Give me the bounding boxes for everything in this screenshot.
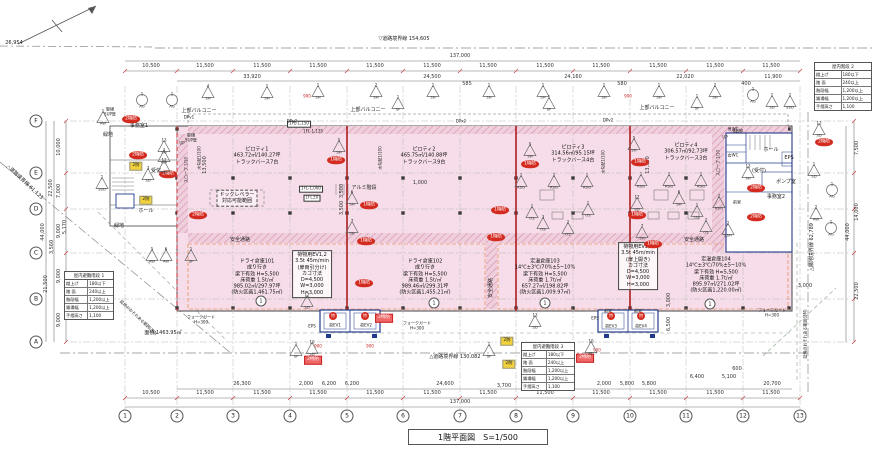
fitting-symbol: 2 AW — [809, 207, 823, 220]
symbol-code: SH — [741, 177, 755, 181]
plan-label: フォークガード H=300 — [403, 321, 431, 330]
symbol-number: 12 — [630, 196, 644, 200]
fitting-symbol: 5 SH — [523, 144, 537, 157]
room-label: 定温倉庫103 14℃±3℃/70%±5~10% 梁下有効 H=5,500 床荷… — [515, 258, 575, 296]
symbol-number: 13 — [812, 122, 826, 126]
dimension-label: 580 — [617, 82, 627, 88]
fitting-symbol: 5 AW — [145, 249, 159, 262]
symbol-code: SSD — [95, 188, 109, 192]
symbol-number: 1 — [825, 183, 839, 187]
fitting-symbol: 2 SSD — [783, 95, 797, 108]
plan-label: 面積:1463.95㎡ — [144, 331, 181, 337]
symbol-code: AG — [165, 105, 179, 109]
symbol-code: SF — [184, 260, 198, 264]
dimension-label: 11,500 — [536, 64, 554, 70]
symbol-number: 1 — [694, 173, 708, 177]
fitting-symbol: 2 SH — [369, 85, 383, 98]
dimension-label: 11,500 — [479, 391, 497, 397]
fitting-symbol: 1 SF — [289, 344, 303, 357]
grid-column-bubble: 7 — [454, 410, 467, 423]
fitting-symbol: 1 SH — [597, 85, 611, 98]
stair-table-title: 屋内避難階段 3 — [522, 343, 574, 351]
symbol-number: 1 — [482, 84, 496, 88]
grid-row-bubble: F — [30, 115, 43, 128]
grid-column-bubble: 4 — [284, 410, 297, 423]
dimension-label: 3,700 — [497, 384, 511, 390]
fitting-symbol: 1 AG — [135, 94, 149, 107]
symbol-code: SSD — [783, 106, 797, 110]
grid-row-bubble: C — [30, 247, 43, 260]
symbol-number: 2 — [809, 206, 823, 210]
room-label: ピロティ4 306.57㎡/92.73坪 トラックバース3台 — [664, 143, 708, 162]
plan-label: 13,500 — [203, 156, 209, 174]
symbol-code: SH — [652, 96, 666, 100]
fire-protection-badge: 1特防 — [357, 237, 375, 245]
symbol-code: SH — [260, 97, 274, 101]
fitting-symbol: 6 AW — [159, 249, 173, 262]
fitting-symbol: 1 AW — [96, 111, 110, 124]
dimension-label: 11,500 — [479, 64, 497, 70]
plan-label: 水勾配1/100 — [379, 146, 384, 170]
plan-label: 6,500 — [667, 317, 673, 331]
symbol-number: 1 — [746, 88, 760, 92]
fitting-symbol: 1 OS — [581, 203, 595, 216]
grid-row-bubble: E — [30, 167, 43, 180]
symbol-number: 1 — [289, 343, 303, 347]
symbol-code: SH — [311, 96, 325, 100]
symbol-code: SD — [812, 134, 826, 138]
fire-protection-badge: 2特防 — [747, 184, 765, 192]
symbol-code: SD — [141, 179, 155, 183]
symbol-code: OS — [581, 214, 595, 218]
fitting-symbol: 6 SH — [345, 192, 359, 205]
fitting-symbol: 1 SF — [391, 97, 405, 110]
symbol-number: 1 — [135, 93, 149, 97]
symbol-number: 1 — [765, 94, 779, 98]
dimension-label: 21,500 — [44, 275, 50, 293]
symbol-number: 13 — [741, 165, 755, 169]
fitting-symbol: 1 RSG — [580, 175, 594, 188]
grid-column-bubble: 8 — [510, 410, 523, 423]
symbol-code: SF — [391, 108, 405, 112]
symbol-code: SH — [708, 96, 722, 100]
symbol-code: AW — [809, 218, 823, 222]
grid-column-bubble: 13 — [794, 410, 807, 423]
fitting-symbol: 4 SH — [201, 86, 215, 99]
symbol-number: 2 — [721, 222, 735, 226]
plan-label: 1FL-1,135 — [303, 130, 323, 135]
dimension-label: 11,500 — [706, 64, 724, 70]
symbol-number: 5 — [627, 137, 641, 141]
room-label: 荷物用EV3,4 3.5t 45m/min (扉上開き) カゴ寸法 D=4,50… — [618, 242, 658, 290]
dimension-label: 24,160 — [564, 75, 582, 81]
spec-value: 240以上 — [547, 359, 565, 366]
dimension-label: 11,500 — [196, 391, 214, 397]
dimension-label: 3,560 — [50, 240, 56, 254]
dimension-label: 11,500 — [309, 391, 327, 397]
symbol-number: 1 — [95, 176, 109, 180]
symbol-number: 13 — [528, 314, 542, 318]
symbol-code: AG — [746, 100, 760, 104]
symbol-code: RSG — [712, 207, 726, 211]
dimension-label: 5,800 — [642, 382, 656, 388]
symbol-number: 1 — [311, 84, 325, 88]
symbol-number: 2 — [561, 221, 575, 225]
fire-protection-badge: 1特防 — [631, 158, 649, 166]
plan-label: 1FL-1,000 — [299, 186, 323, 193]
symbol-code: RSG — [580, 186, 594, 190]
symbol-code: SD — [584, 352, 598, 356]
stair-spec-table-2: 屋内階段 2 蹴上げ180以下 踏 面240以上 階段幅1,200以上 踊場幅1… — [814, 62, 872, 111]
symbol-code: RSG — [547, 186, 561, 190]
symbol-code: SD — [305, 353, 319, 357]
room-number-mark: 1 — [256, 296, 267, 307]
fitting-symbol: 1 SH — [311, 85, 325, 98]
symbol-number: 10 — [305, 341, 319, 345]
symbol-code: SSH — [721, 234, 735, 238]
dimension-label: 6,200 — [345, 382, 359, 388]
plan-label: ポンプ室 — [776, 180, 796, 186]
plan-label: 安全通路 — [230, 238, 250, 244]
fitting-symbol: 2 SH — [708, 85, 722, 98]
fire-protection-badge: 2特防 — [129, 151, 147, 159]
fitting-symbol: 1 AG — [746, 89, 760, 102]
dimension-label: 11,500 — [423, 64, 441, 70]
dimension-label: 11,500 — [253, 391, 271, 397]
symbol-code: SH — [332, 151, 346, 155]
grid-column-bubble: 5 — [341, 410, 354, 423]
fitting-symbol: 5 SH — [332, 140, 346, 153]
symbol-number: 7 — [635, 225, 649, 229]
fitting-symbol: 2 RSG — [712, 196, 726, 209]
fitting-symbol: 2 OS — [699, 220, 713, 233]
symbol-code: AG — [825, 195, 839, 199]
symbol-number: 11 — [157, 159, 171, 163]
symbol-code: SF — [482, 355, 496, 359]
symbol-code: SH — [672, 203, 686, 207]
dimension-label: 11,500 — [592, 64, 610, 70]
plan-label: EPS — [308, 325, 315, 330]
plan-label: ホール — [763, 148, 778, 154]
spec-value: 1,200以上 — [842, 87, 864, 94]
grid-column-bubble: 9 — [567, 410, 580, 423]
grid-column-bubble: 2 — [171, 410, 184, 423]
plan-label: 上部バルコニー — [640, 106, 675, 112]
plan-label: ▽道路境界線 154,605 — [378, 37, 429, 43]
spec-value: 1,100 — [547, 383, 561, 390]
fitting-symbol: 1 SH — [426, 85, 440, 98]
dimension-label: 11,500 — [762, 64, 780, 70]
fitting-symbol: 10 SD — [305, 342, 319, 355]
symbol-number: 6 — [672, 191, 686, 195]
plan-label: EPS — [591, 317, 598, 322]
fitting-symbol: 7 SH — [345, 221, 359, 234]
room-label: ピロティ2 465.75㎡/140.88坪 トラックバース9台 — [401, 147, 448, 166]
plan-label: 荷EV2 — [360, 324, 372, 329]
dimension-label: 10,000 — [57, 138, 63, 156]
dimension-label: 44,000 — [846, 223, 852, 241]
spec-key: 踊場幅 — [65, 304, 88, 311]
spec-value: 180以下 — [842, 71, 860, 78]
symbol-number: 7 — [345, 220, 359, 224]
fitting-symbol: 1 SH — [260, 86, 274, 99]
stair-table-title: 屋内階段 2 — [815, 63, 871, 71]
spec-key: 蹴上げ — [815, 71, 842, 78]
fitting-symbol: 1 SSD — [95, 177, 109, 190]
symbol-number: 4 — [157, 149, 171, 153]
grid-column-bubble: 10 — [624, 410, 637, 423]
symbol-number: 1 — [184, 248, 198, 252]
plan-label: 上部バルコニー — [351, 108, 386, 114]
plan-label: 1FL±0 — [304, 195, 321, 202]
plan-label: UP — [722, 136, 727, 141]
spec-value: 240以上 — [842, 79, 860, 86]
fitting-symbol: 1 SD — [765, 95, 779, 108]
symbol-code: SD — [528, 326, 542, 330]
spec-key: 手摺高さ — [815, 103, 842, 110]
dimension-label: 7,500 — [855, 141, 861, 155]
dimension-label: 33,920 — [243, 75, 261, 81]
dimension-label: 600 — [732, 367, 742, 373]
spec-value: 1,200以上 — [547, 375, 569, 382]
plan-label: △道路境界線 130,082 — [429, 355, 480, 361]
fitting-symbol: 1 OS — [690, 205, 704, 218]
fire-protection-badge: 2防 — [502, 360, 515, 369]
symbol-number: 13 — [157, 139, 171, 143]
fitting-symbol: 12 SD — [300, 295, 314, 308]
symbol-number: 1 — [690, 204, 704, 208]
spec-key: 踊場幅 — [815, 95, 842, 102]
symbol-number: 1 — [824, 221, 838, 225]
plan-label: 延焼のおそれある範囲(3M) — [804, 309, 809, 358]
dimension-label: 7,000 — [57, 184, 63, 198]
spec-key: 手摺高さ — [65, 312, 88, 319]
symbol-code: SH — [426, 96, 440, 100]
fire-protection-badge: 2特防 — [122, 115, 140, 123]
spec-key: 踏 面 — [815, 79, 842, 86]
symbol-code: SH — [482, 96, 496, 100]
fitting-symbol: 1 SF — [482, 344, 496, 357]
symbol-number: 1 — [514, 174, 528, 178]
plan-label: 26,954 — [5, 41, 23, 47]
fitting-symbol: 1 RSG — [634, 174, 648, 187]
plan-label: 荷EV4 — [635, 325, 647, 330]
plan-label: 安全通路 — [684, 238, 704, 244]
room-label: ピロティ3 314.56㎡/95.15坪 トラックバース4台 — [551, 145, 595, 164]
symbol-code: SF — [542, 108, 556, 112]
spec-value: 180以下 — [88, 280, 106, 287]
symbol-number: 1 — [391, 96, 405, 100]
plan-label: EPS — [784, 156, 793, 162]
fire-protection-badge: 1特防 — [644, 240, 662, 248]
symbol-code: SD — [765, 106, 779, 110]
symbol-code: SD — [300, 306, 314, 310]
fire-protection-badge: 1特防 — [327, 156, 345, 164]
plan-label: スロープ 1/10 — [717, 150, 722, 176]
dimension-label: 10,500 — [142, 64, 160, 70]
fitting-symbol: 1 RSG — [662, 174, 676, 187]
symbol-number: 1 — [807, 163, 821, 167]
fitting-symbol: 7 SH — [635, 226, 649, 239]
fitting-symbol: 1 RSG — [514, 175, 528, 188]
dimension-label: 2,000 — [597, 382, 611, 388]
room-number-mark: 1 — [429, 298, 440, 309]
spec-key: 階段幅 — [522, 367, 547, 374]
grid-column-bubble: 12 — [737, 410, 750, 423]
fire-protection-badge: 2特防 — [747, 213, 765, 221]
dimension-label: 137,000 — [450, 400, 471, 406]
spec-value: 180以下 — [547, 351, 565, 358]
spec-value: 1,200以上 — [547, 367, 569, 374]
fire-protection-badge: 特 — [637, 312, 645, 320]
plan-label: 1,000 — [413, 181, 427, 187]
dimension-label: 11,500 — [253, 64, 271, 70]
symbol-code: SH — [201, 97, 215, 101]
symbol-code: OS — [536, 228, 550, 232]
fitting-symbol: 1 SF — [690, 96, 704, 109]
plan-label: 3,000 — [798, 284, 812, 290]
plan-label: ホール — [138, 209, 153, 215]
fire-protection-badge: 2防 — [500, 337, 513, 346]
symbol-number: 2 — [547, 174, 561, 178]
dimension-label: 11,500 — [706, 391, 724, 397]
fitting-symbol: 5 SH — [627, 138, 641, 151]
symbol-code: SH — [635, 237, 649, 241]
symbol-code: RSG — [634, 185, 648, 189]
dimension-label: 22,500 — [49, 179, 55, 197]
spec-value: 1,200以上 — [88, 296, 110, 303]
symbol-number: 5 — [523, 143, 537, 147]
symbol-number: 6 — [159, 248, 173, 252]
fire-protection-badge: 1特防 — [521, 160, 539, 168]
fitting-symbol: 1 AG — [824, 222, 838, 235]
plan-label: スロープ 1/10 — [185, 157, 190, 183]
spec-value: 1,100 — [842, 103, 856, 110]
symbol-number: 2 — [708, 84, 722, 88]
symbol-number: 12 — [300, 294, 314, 298]
symbol-number: 1 — [662, 173, 676, 177]
symbol-number: 1 — [581, 202, 595, 206]
fitting-symbol: 1 RSG — [694, 174, 708, 187]
fitting-symbol: 3 SD — [141, 168, 155, 181]
plan-label: 事務室1 — [130, 124, 148, 130]
fitting-symbol: 10 SD — [584, 341, 598, 354]
symbol-number: 1 — [597, 84, 611, 88]
dimension-label: 11,500 — [762, 391, 780, 397]
spec-key: 蹴上げ — [65, 280, 88, 287]
dimension-label: 11,500 — [592, 391, 610, 397]
fire-protection-badge: 2特防 — [304, 356, 322, 365]
spec-value: 1,200以上 — [842, 95, 864, 102]
spec-value: 240以上 — [88, 288, 106, 295]
drawing-scale: S=1/500 — [483, 433, 518, 442]
symbol-code: SH — [597, 96, 611, 100]
dimension-label: 5,800 — [620, 382, 634, 388]
fire-protection-badge: 1特防 — [355, 279, 373, 287]
drawing-title-text: 1階平面図 — [438, 432, 475, 443]
floor-plan-drawing: 26,954▽道路境界線 154,605△道路境界線 130,082△隣地境界線… — [0, 0, 875, 455]
room-label: 定温倉庫104 14℃±3℃/70%±5~10% 梁下有効 H=5,500 床荷… — [686, 256, 746, 294]
fire-protection-badge: 特 — [607, 312, 615, 320]
dimension-label: 5,170 — [63, 220, 69, 234]
symbol-number: 2 — [783, 94, 797, 98]
symbol-number: 1 — [536, 84, 550, 88]
symbol-number: 1 — [426, 84, 440, 88]
dimension-label: 24,600 — [436, 382, 454, 388]
fire-protection-badge: 2特防 — [375, 314, 393, 323]
symbol-code: SD — [807, 175, 821, 179]
plan-label: フォークガード H=300 — [187, 315, 215, 324]
fitting-symbol: 12 SD — [630, 197, 644, 210]
drawing-title: 1階平面図 S=1/500 — [408, 429, 548, 445]
fitting-symbol: 13 SD — [528, 315, 542, 328]
symbol-number: 4 — [201, 85, 215, 89]
fitting-symbol: 2 OS — [561, 222, 575, 235]
grid-row-bubble: D — [30, 203, 43, 216]
grid-row-bubble: A — [30, 336, 43, 349]
symbol-number: 1 — [542, 96, 556, 100]
spec-key: 踏 面 — [65, 288, 88, 295]
symbol-code: AW — [159, 260, 173, 264]
plan-label: △隣地境界線 62,789 — [810, 223, 816, 271]
plan-label: フォークガード H=300 — [758, 308, 786, 317]
dimension-label: 11,500 — [366, 391, 384, 397]
dimension-label: 9,000 — [57, 313, 63, 327]
dimension-label: 2,000 — [299, 382, 313, 388]
dimension-label: 9,000 — [57, 269, 63, 283]
symbol-number: 5 — [145, 248, 159, 252]
symbol-number: 6 — [345, 191, 359, 195]
symbol-code: OS — [699, 231, 713, 235]
dimension-label: 5,100 — [722, 375, 736, 381]
symbol-code: SF — [289, 355, 303, 359]
symbol-number: 5 — [332, 139, 346, 143]
symbol-number: 1 — [525, 205, 539, 209]
fitting-symbol: 1 SD — [807, 164, 821, 177]
fire-protection-badge: 特 — [361, 312, 369, 320]
fire-protection-badge: 1特防 — [360, 201, 378, 209]
symbol-code: SH — [627, 149, 641, 153]
symbol-number: 10 — [584, 340, 598, 344]
symbol-code: RSG — [662, 185, 676, 189]
plan-label: 緑地 — [114, 224, 124, 230]
fitting-symbol: 11 SD — [157, 160, 171, 173]
symbol-number: 1 — [260, 85, 274, 89]
fitting-symbol: 1 SH — [652, 85, 666, 98]
room-number-mark: 1 — [705, 299, 716, 310]
symbol-code: SH — [369, 96, 383, 100]
stair-spec-table-3: 屋内避難階段 3 蹴上げ180以下 踏 面240以上 階段幅1,200以上 踊場… — [521, 342, 575, 391]
grid-column-bubble: 6 — [397, 410, 410, 423]
symbol-number: 1 — [165, 93, 179, 97]
fitting-symbol: 1 AG — [165, 94, 179, 107]
fire-protection-badge: 2特防 — [815, 138, 833, 146]
symbol-code: AG — [135, 105, 149, 109]
plan-label: 荷EV1 — [329, 324, 341, 329]
symbol-code: SH — [345, 203, 359, 207]
symbol-number: 1 — [580, 174, 594, 178]
fitting-symbol: 2 SSH — [721, 223, 735, 236]
fire-protection-badge: 2特防 — [189, 211, 207, 219]
plan-label: DPv2 — [603, 119, 613, 124]
plan-label: 前室 — [733, 201, 741, 206]
symbol-code: AW — [96, 122, 110, 126]
dimension-label: 11,500 — [649, 64, 667, 70]
dimension-label: 11,500 — [423, 391, 441, 397]
plan-label: 事務室2 — [767, 195, 785, 201]
dimension-label: 11,500 — [309, 64, 327, 70]
symbol-number: 1 — [96, 110, 110, 114]
